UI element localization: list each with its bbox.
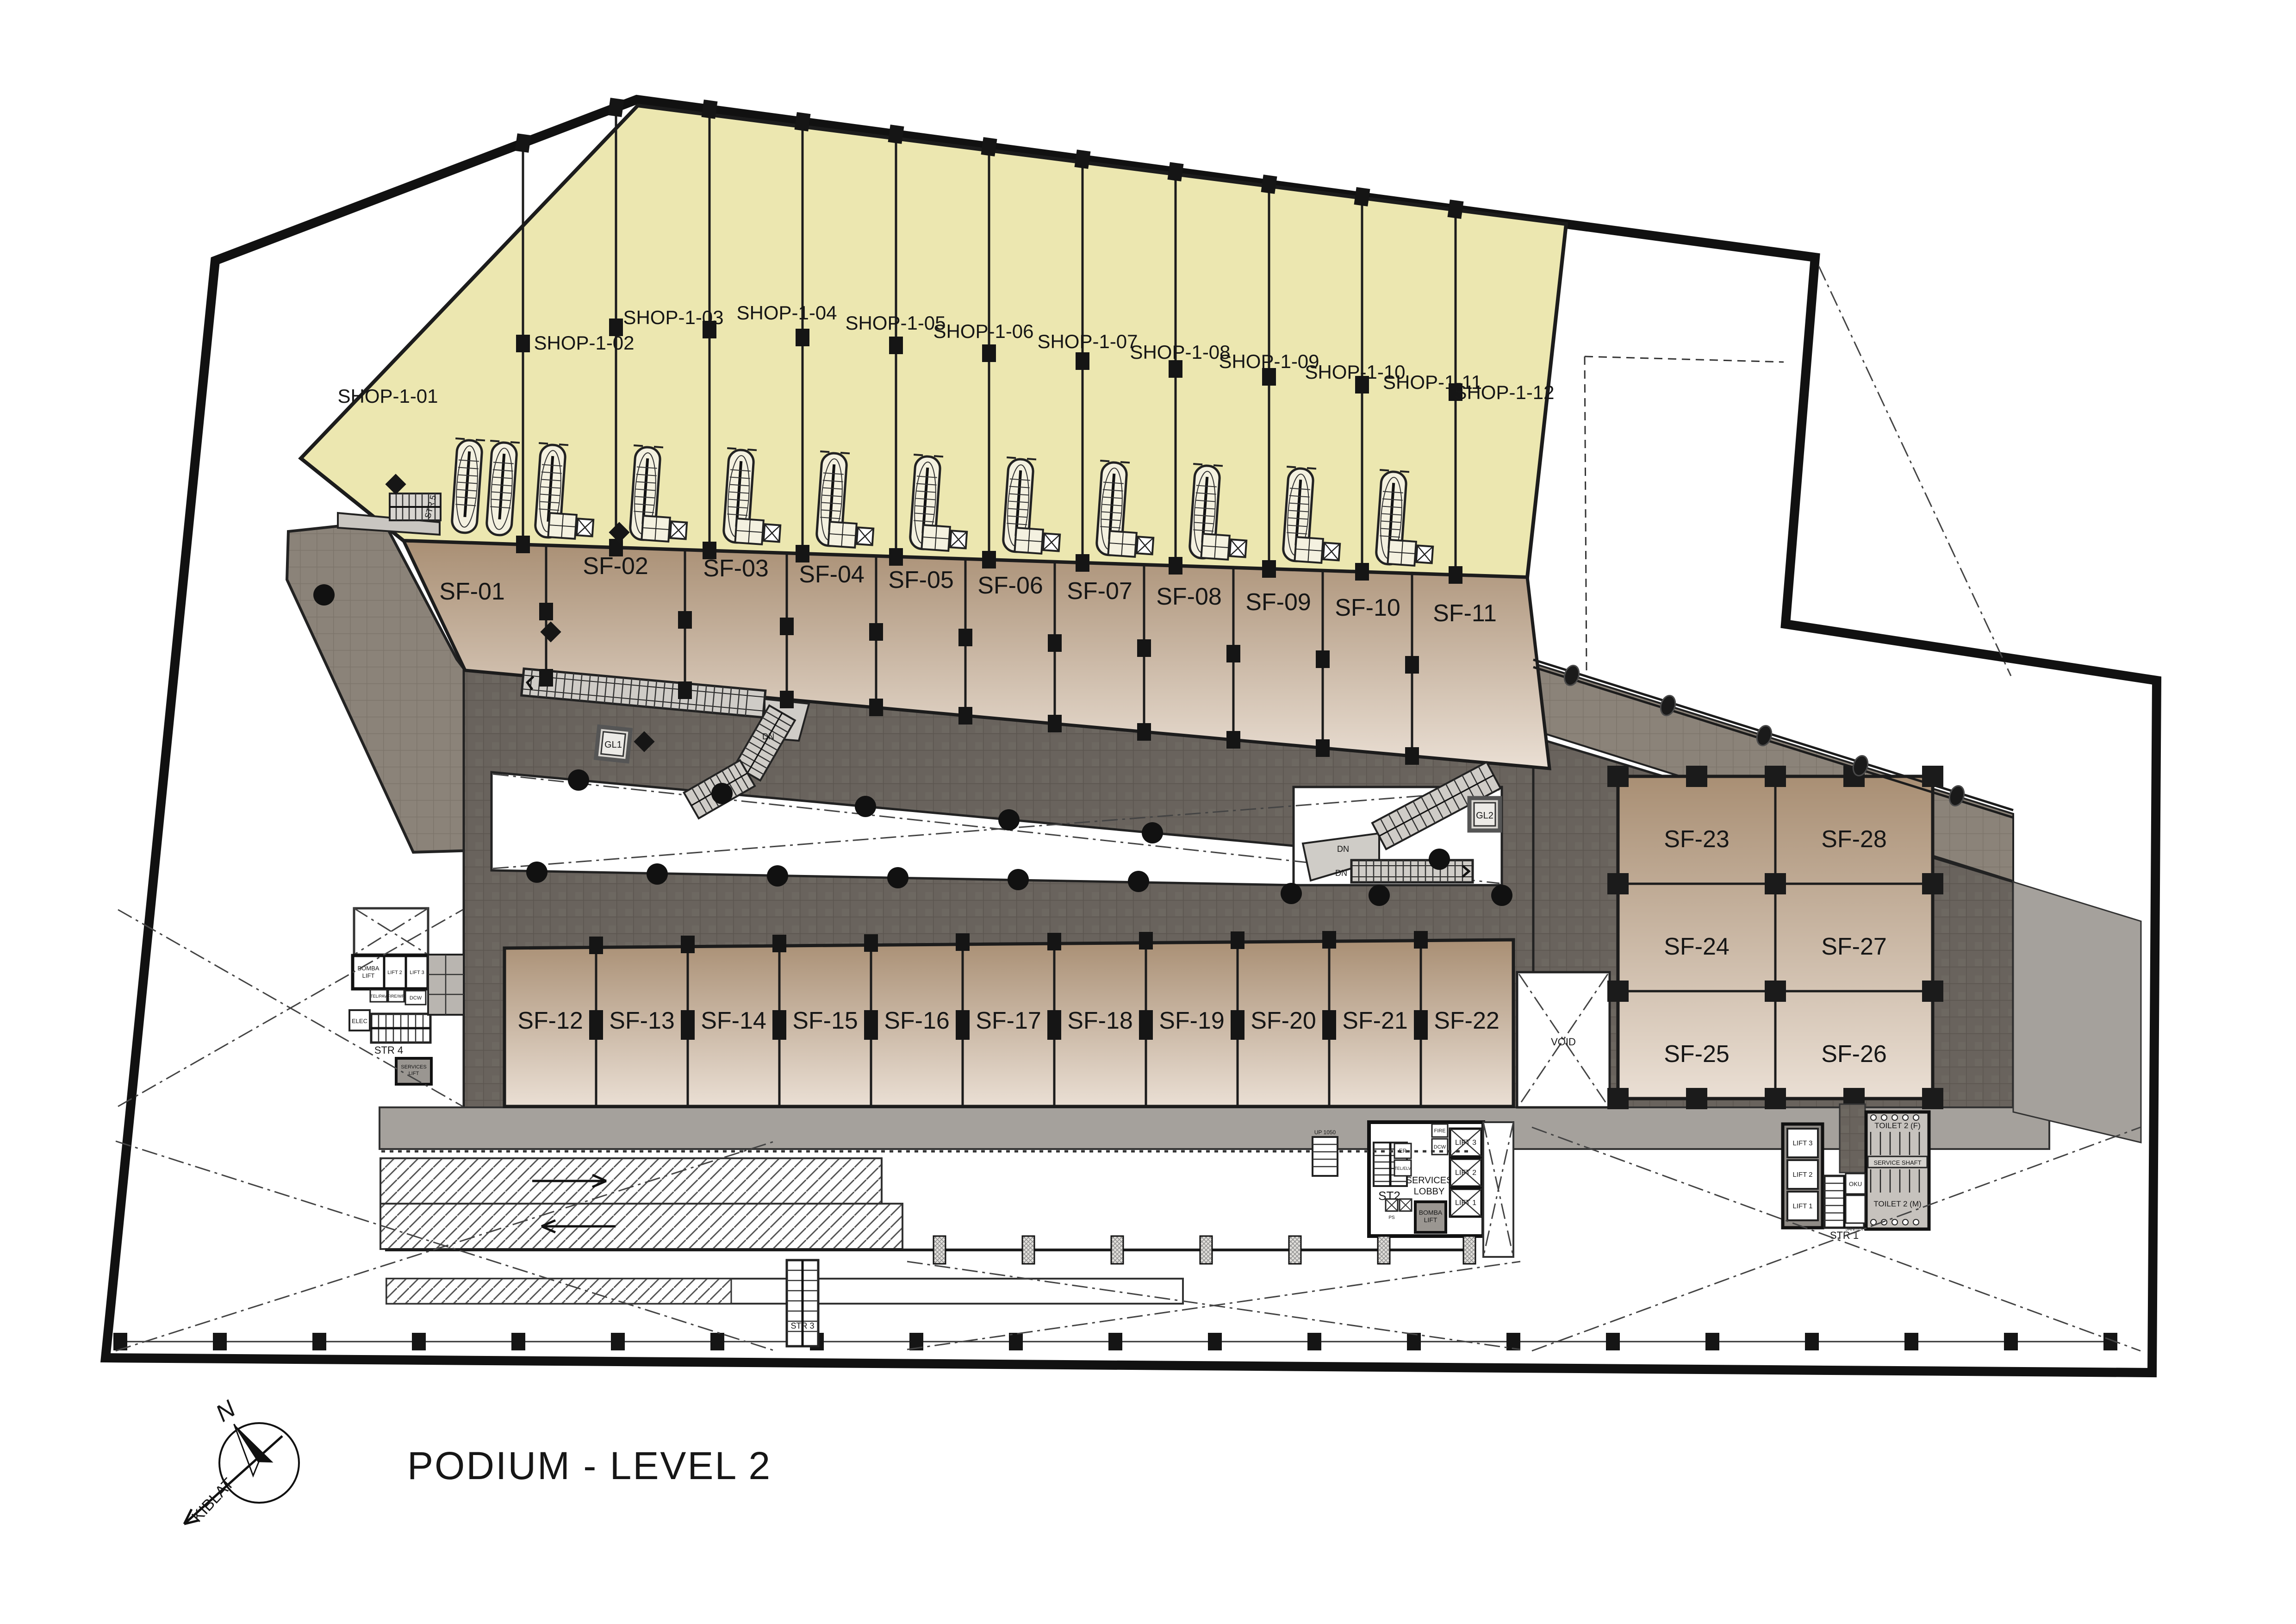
center-bomba-label2: LIFT [1424,1216,1437,1224]
unit-label-sf-27: SF-27 [1821,933,1887,960]
up-label: UP 1050 [1314,1129,1336,1136]
left-lift3-label: LIFT 3 [410,970,424,975]
center-core: ST2 SERVICES LOBBY BOMBA LIFT LIFT 3 LIF… [1369,1122,1513,1257]
unit-label-sf-26: SF-26 [1821,1041,1887,1068]
service-shaft-label: SERVICE SHAFT [1873,1159,1921,1166]
right-lift1-label: LIFT 1 [1792,1202,1812,1210]
center-bomba-label: BOMBA [1419,1209,1443,1216]
oku-label: OKU [1849,1181,1862,1187]
right-lift2-label: LIFT 2 [1792,1171,1812,1179]
unit-label-shop-1-07: SHOP-1-07 [1037,331,1138,352]
unit-label-shop-1-02: SHOP-1-02 [534,332,634,354]
compass-north-label: N [211,1395,240,1427]
unit-label-shop-1-09: SHOP-1-09 [1219,350,1319,372]
unit-label-sf-05: SF-05 [888,567,954,593]
title-block: PODIUM - LEVEL 2 N KIBLAT [184,1393,772,1525]
left-lift2-label: LIFT 2 [387,970,402,975]
unit-label-sf-09: SF-09 [1245,589,1311,616]
unit-label-sf-12: SF-12 [517,1007,583,1034]
str3-stair [787,1260,818,1346]
floor-plan-page: VOID [0,0,2296,1624]
floor-plan-drawing: VOID [0,0,2296,1624]
unit-label-sf-14: SF-14 [701,1007,766,1034]
unit-label-sf-16: SF-16 [884,1007,950,1034]
page-title: PODIUM - LEVEL 2 [407,1444,772,1487]
center-dcw-label: DCW [1434,1144,1446,1150]
unit-label-sf-04: SF-04 [799,561,865,588]
center-lift2-label: LIFT 2 [1455,1169,1476,1177]
unit-label-sf-06: SF-06 [977,572,1043,599]
right-core: LIFT 3 LIFT 2 LIFT 1 STR 1 TOILET 2 (F) … [1783,1104,1929,1241]
unit-label-sf-07: SF-07 [1067,578,1132,605]
unit-label-sf-03: SF-03 [703,555,769,582]
left-bomba-label2: LIFT [362,972,375,979]
unit-label-sf-11: SF-11 [1433,600,1497,627]
sf-block [1607,766,1943,1109]
up-ministair [1313,1137,1338,1176]
center-tel-label: TEL/ELV [1394,1166,1411,1171]
services-lobby-label: SERVICES [1406,1175,1453,1186]
unit-label-shop-1-06: SHOP-1-06 [933,320,1033,342]
north-compass: N KIBLAT [184,1393,299,1525]
unit-label-shop-1-08: SHOP-1-08 [1130,341,1230,363]
void-label: VOID [1551,1036,1576,1048]
dn-label-1: DN [762,732,774,741]
dn-label-2: DN [1337,844,1349,854]
center-lift3-label: LIFT 3 [1455,1139,1476,1147]
str3-label: STR 3 [790,1321,814,1330]
left-fire-label: FIRE/WR [387,994,405,999]
void-area: VOID [1517,972,1610,1107]
unit-label-sf-02: SF-02 [583,553,648,580]
janitor-label: JANITOR [1846,1227,1866,1232]
left-elec-label: ELEC [352,1018,367,1024]
escalator-lower: DN [1335,860,1473,882]
unit-label-sf-01: SF-01 [439,578,505,605]
bottom-columns [113,1333,2117,1350]
unit-label-sf-15: SF-15 [792,1007,858,1034]
center-fire-label: FIRE [1434,1128,1445,1134]
unit-label-shop-1-01: SHOP-1-01 [337,385,438,407]
right-lift3-label: LIFT 3 [1792,1139,1812,1147]
unit-label-sf-22: SF-22 [1434,1007,1500,1034]
toilet-f-label: TOILET 2 (F) [1874,1121,1921,1130]
gl2-label: GL2 [1476,811,1493,821]
unit-label-sf-18: SF-18 [1067,1007,1133,1034]
unit-label-sf-21: SF-21 [1342,1007,1408,1034]
unit-label-sf-28: SF-28 [1821,826,1887,853]
unit-label-sf-19: SF-19 [1159,1007,1225,1034]
unit-label-sf-10: SF-10 [1335,594,1400,621]
unit-label-sf-25: SF-25 [1664,1041,1730,1068]
unit-label-sf-17: SF-17 [976,1007,1041,1034]
unit-label-shop-1-03: SHOP-1-03 [623,306,723,328]
str4-label: STR 4 [374,1044,403,1056]
left-services-lift-label: SERVICES [401,1064,426,1070]
unit-label-sf-08: SF-08 [1156,583,1222,610]
services-lobby-label2: LOBBY [1414,1187,1445,1197]
left-tel-label: TEL/PAV [370,994,387,999]
unit-label-sf-13: SF-13 [609,1007,675,1034]
unit-label-sf-23: SF-23 [1664,826,1730,853]
center-lift1-label: LIFT 1 [1455,1199,1476,1207]
unit-label-sf-20: SF-20 [1251,1007,1316,1034]
center-ps-label: PS [1388,1215,1395,1220]
toilet-m-label: TOILET 2 (M) [1873,1199,1921,1208]
compass-qibla-label: KIBLAT [188,1475,237,1526]
left-services-lift-label2: LIFT [409,1071,419,1076]
unit-label-shop-1-05: SHOP-1-05 [845,312,946,334]
left-dcw-label: DCW [410,995,422,1001]
gl1-label: GL1 [604,740,622,750]
str4-stair [371,1014,430,1043]
unit-label-sf-24: SF-24 [1664,933,1730,960]
sf-lower-labels: SF-12 SF-13 SF-14 SF-15 SF-16 SF-17 SF-1… [517,1007,1500,1034]
unit-label-shop-1-12: SHOP-1-12 [1454,381,1554,403]
dn-label-3: DN [1335,868,1347,878]
ramp [380,1158,902,1249]
unit-label-shop-1-04: SHOP-1-04 [736,302,837,324]
